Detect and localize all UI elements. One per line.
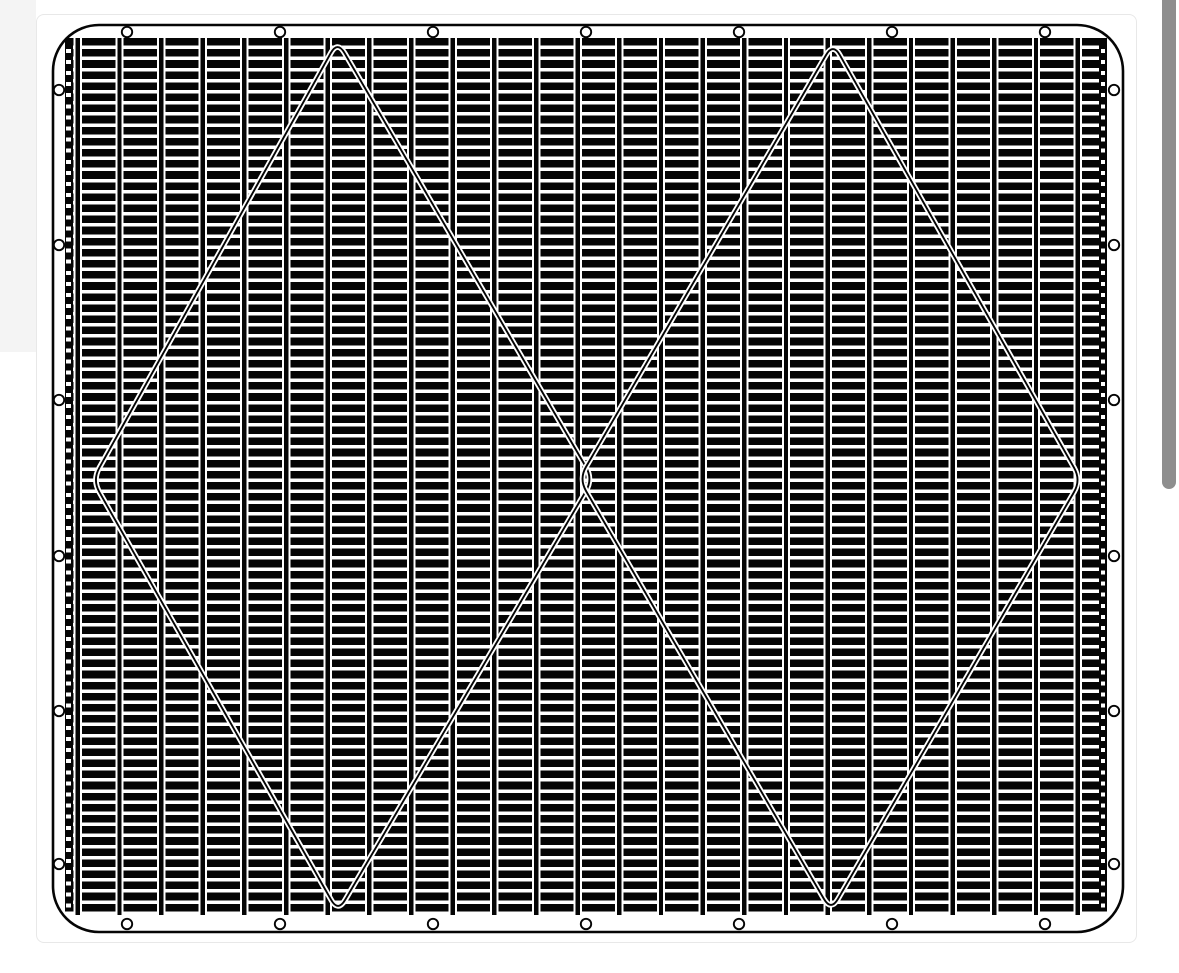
grid-left-edge-strip [65, 45, 73, 910]
edge-strip-perforations [1101, 45, 1105, 910]
grid-right-edge-strip [1099, 45, 1107, 910]
viewer-page [0, 0, 1179, 973]
left-margin-shade [0, 0, 36, 352]
vertical-scrollbar-thumb[interactable] [1162, 0, 1176, 489]
grille-mesh-pattern [65, 38, 1107, 915]
edge-strip-perforations [66, 45, 70, 910]
